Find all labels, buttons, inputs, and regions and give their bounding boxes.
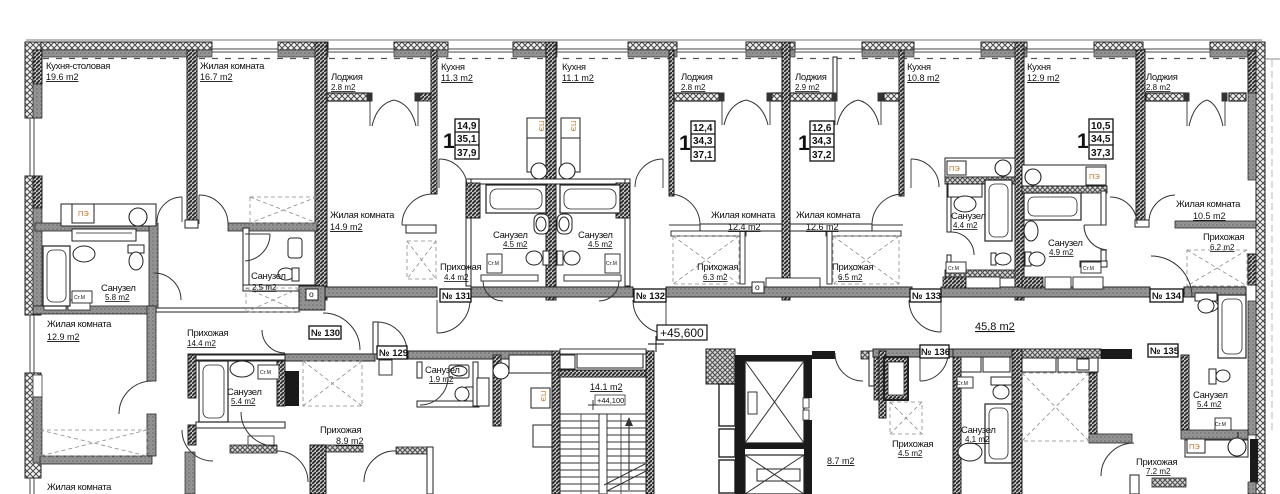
svg-text:16.7 m2: 16.7 m2 bbox=[200, 72, 233, 82]
svg-text:Ст.М: Ст.М bbox=[74, 295, 85, 301]
svg-text:2.9 m2: 2.9 m2 bbox=[795, 83, 820, 92]
svg-text:4.9 m2: 4.9 m2 bbox=[1049, 248, 1074, 257]
svg-text:№ 135: № 135 bbox=[1150, 346, 1180, 357]
svg-text:№ 134: № 134 bbox=[1152, 291, 1182, 302]
svg-text:Прихожая: Прихожая bbox=[1203, 232, 1244, 243]
svg-text:Жилая комната: Жилая комната bbox=[796, 210, 861, 221]
svg-text:45,8 m2: 45,8 m2 bbox=[975, 321, 1015, 333]
svg-text:Прихожая: Прихожая bbox=[697, 262, 738, 273]
svg-text:№ 130: № 130 bbox=[311, 328, 340, 339]
svg-text:1: 1 bbox=[798, 132, 810, 155]
svg-text:№ 129: № 129 bbox=[379, 348, 408, 359]
svg-text:37,2: 37,2 bbox=[812, 150, 832, 161]
svg-text:o: o bbox=[755, 282, 760, 292]
svg-text:14.9 m2: 14.9 m2 bbox=[330, 222, 363, 232]
svg-text:1: 1 bbox=[1077, 130, 1089, 153]
svg-text:Кухня: Кухня bbox=[1027, 62, 1051, 73]
svg-text:Кухня: Кухня bbox=[441, 62, 465, 73]
svg-text:10,5: 10,5 bbox=[1091, 121, 1111, 132]
svg-text:8.7 m2: 8.7 m2 bbox=[827, 456, 855, 466]
svg-text:14,9: 14,9 bbox=[457, 121, 477, 132]
svg-text:Ст.М: Ст.М bbox=[1215, 422, 1226, 428]
svg-text:ПЭ: ПЭ bbox=[949, 164, 960, 173]
svg-text:12.9 m2: 12.9 m2 bbox=[1027, 73, 1060, 83]
svg-text:o: o bbox=[309, 289, 314, 299]
svg-text:Ст.М: Ст.М bbox=[488, 261, 499, 267]
svg-text:№ 133: № 133 bbox=[912, 291, 941, 302]
svg-text:12.4 m2: 12.4 m2 bbox=[728, 222, 761, 232]
svg-text:Ст.М: Ст.М bbox=[957, 381, 968, 387]
svg-text:4.5 m2: 4.5 m2 bbox=[588, 240, 613, 249]
svg-text:Кухня: Кухня bbox=[562, 62, 586, 73]
svg-text:Ст.М: Ст.М bbox=[1083, 266, 1094, 272]
svg-text:8.9 m2: 8.9 m2 bbox=[336, 436, 364, 446]
svg-text:ПЭ: ПЭ bbox=[1089, 172, 1100, 181]
svg-text:Кухня-столовая: Кухня-столовая bbox=[46, 61, 110, 72]
svg-text:37,3: 37,3 bbox=[1091, 148, 1111, 159]
svg-text:Лоджия: Лоджия bbox=[331, 72, 363, 83]
svg-text:Жилая комната: Жилая комната bbox=[47, 482, 112, 493]
svg-text:Ст.М: Ст.М bbox=[948, 266, 959, 272]
svg-text:Прихожая: Прихожая bbox=[832, 262, 873, 273]
svg-text:2.5 m2: 2.5 m2 bbox=[252, 283, 277, 292]
svg-text:Жилая комната: Жилая комната bbox=[330, 210, 395, 221]
svg-text:Ст.М: Ст.М bbox=[606, 261, 617, 267]
svg-text:6.2 m2: 6.2 m2 bbox=[1210, 243, 1235, 252]
svg-text:Санузел: Санузел bbox=[251, 271, 286, 282]
svg-text:11.1 m2: 11.1 m2 bbox=[562, 73, 594, 83]
svg-text:ПЭ: ПЭ bbox=[539, 391, 548, 402]
svg-text:Ст.М: Ст.М bbox=[260, 370, 271, 376]
svg-text:19.6 m2: 19.6 m2 bbox=[46, 72, 79, 82]
svg-text:12,4: 12,4 bbox=[693, 123, 713, 134]
svg-text:12.6 m2: 12.6 m2 bbox=[806, 222, 839, 232]
svg-text:ПЭ: ПЭ bbox=[78, 209, 89, 218]
svg-text:4.1 m2: 4.1 m2 bbox=[965, 435, 990, 444]
svg-text:37,1: 37,1 bbox=[693, 150, 713, 161]
svg-text:7.2 m2: 7.2 m2 bbox=[1146, 467, 1171, 476]
svg-text:6.3 m2: 6.3 m2 bbox=[703, 273, 728, 282]
svg-text:12,6: 12,6 bbox=[812, 123, 832, 134]
svg-text:+44,100: +44,100 bbox=[597, 396, 624, 405]
svg-text:Лоджия: Лоджия bbox=[681, 72, 713, 83]
svg-text:ПЭ: ПЭ bbox=[537, 121, 546, 132]
svg-text:6.5 m2: 6.5 m2 bbox=[838, 273, 863, 282]
svg-text:1: 1 bbox=[679, 132, 691, 155]
svg-text:№ 131: № 131 bbox=[442, 291, 472, 302]
svg-text:10.5 m2: 10.5 m2 bbox=[1193, 211, 1226, 221]
svg-text:34,3: 34,3 bbox=[812, 136, 832, 147]
svg-text:Лоджия: Лоджия bbox=[795, 72, 827, 83]
svg-text:Жилая комната: Жилая комната bbox=[47, 319, 112, 330]
svg-text:37,9: 37,9 bbox=[457, 148, 477, 159]
svg-text:5.4 m2: 5.4 m2 bbox=[1197, 400, 1222, 409]
svg-text:35,1: 35,1 bbox=[457, 134, 477, 145]
svg-text:+45,600: +45,600 bbox=[660, 326, 704, 340]
svg-text:1: 1 bbox=[443, 130, 455, 153]
svg-text:4.4 m2: 4.4 m2 bbox=[953, 221, 978, 230]
svg-text:№ 132: № 132 bbox=[636, 291, 665, 302]
svg-text:ПЭ: ПЭ bbox=[569, 121, 578, 132]
svg-text:Прихожая: Прихожая bbox=[187, 328, 228, 339]
svg-text:11.3 m2: 11.3 m2 bbox=[441, 73, 473, 83]
svg-text:34,3: 34,3 bbox=[693, 136, 713, 147]
svg-text:14.4 m2: 14.4 m2 bbox=[187, 339, 216, 348]
svg-text:Прихожая: Прихожая bbox=[440, 262, 481, 273]
svg-text:Кухня: Кухня bbox=[907, 62, 931, 73]
svg-text:1.9 m2: 1.9 m2 bbox=[429, 375, 454, 384]
svg-text:Жилая комната: Жилая комната bbox=[1176, 199, 1241, 210]
svg-text:2.8 m2: 2.8 m2 bbox=[331, 83, 356, 92]
svg-text:Жилая комната: Жилая комната bbox=[711, 210, 776, 221]
svg-text:34,5: 34,5 bbox=[1091, 134, 1111, 145]
svg-text:4.4 m2: 4.4 m2 bbox=[444, 273, 469, 282]
svg-text:10.8 m2: 10.8 m2 bbox=[907, 73, 940, 83]
svg-text:Жилая комната: Жилая комната bbox=[200, 61, 265, 72]
svg-text:5.8 m2: 5.8 m2 bbox=[105, 293, 130, 302]
svg-text:12.9 m2: 12.9 m2 bbox=[47, 332, 80, 342]
svg-text:ПЭ: ПЭ bbox=[1189, 442, 1200, 451]
svg-text:14.1 m2: 14.1 m2 bbox=[590, 382, 623, 392]
svg-text:4.5 m2: 4.5 m2 bbox=[898, 449, 923, 458]
svg-text:4.5 m2: 4.5 m2 bbox=[503, 240, 528, 249]
svg-text:№ 136: № 136 bbox=[921, 347, 950, 358]
svg-text:Лоджия: Лоджия bbox=[1146, 72, 1178, 83]
svg-text:Прихожая: Прихожая bbox=[320, 425, 361, 436]
svg-text:2.8 m2: 2.8 m2 bbox=[681, 83, 706, 92]
svg-text:5.4 m2: 5.4 m2 bbox=[231, 397, 256, 406]
svg-text:2.8 m2: 2.8 m2 bbox=[1146, 83, 1171, 92]
